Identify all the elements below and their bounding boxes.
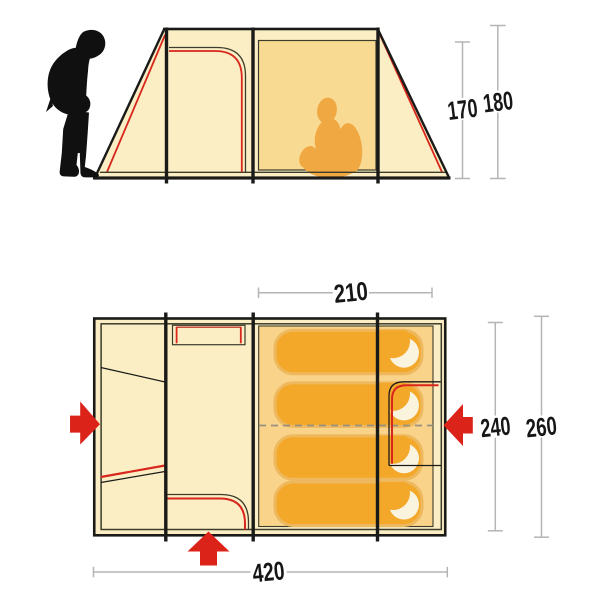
svg-text:180: 180 (481, 85, 514, 118)
svg-text:240: 240 (479, 410, 512, 443)
svg-text:260: 260 (524, 410, 558, 443)
svg-text:210: 210 (332, 276, 369, 309)
svg-text:170: 170 (446, 93, 479, 126)
svg-text:420: 420 (251, 555, 286, 588)
